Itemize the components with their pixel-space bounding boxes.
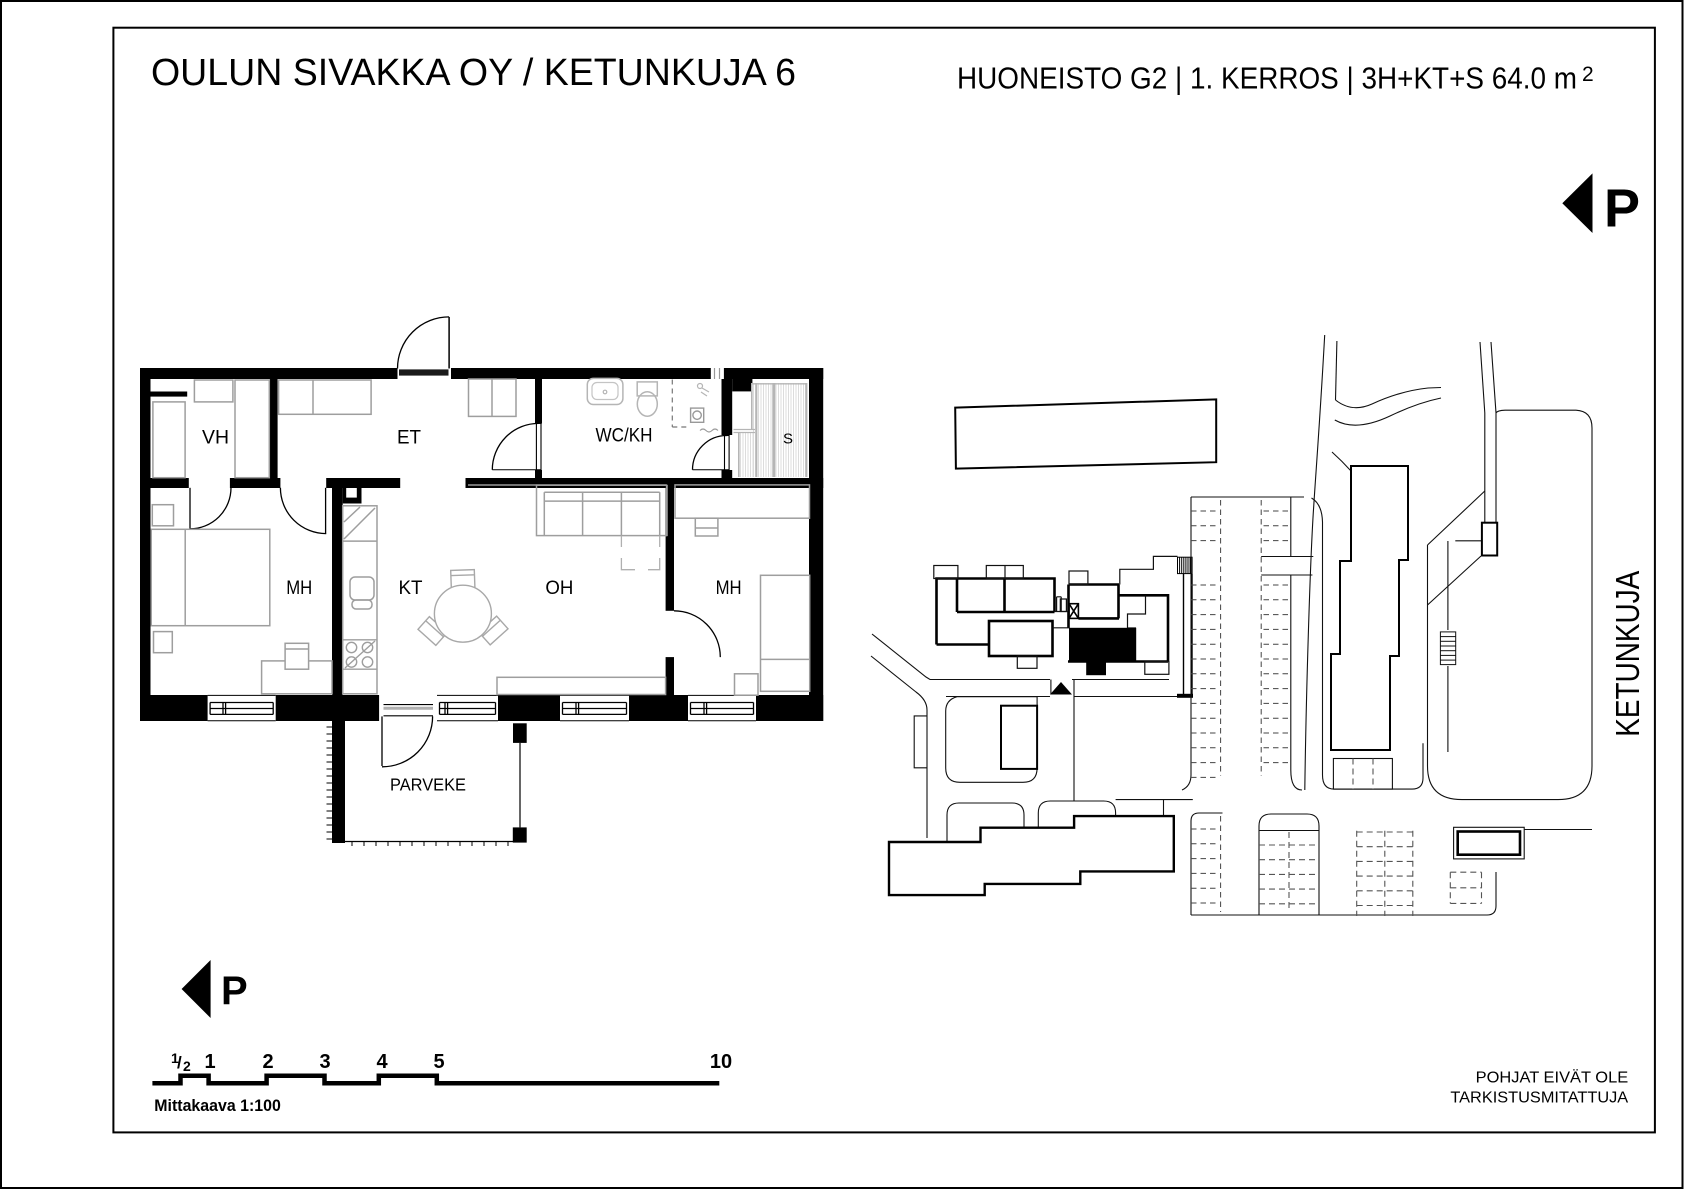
svg-text:P: P [1604, 179, 1640, 239]
svg-text:5: 5 [433, 1051, 444, 1073]
svg-text:Mittakaava 1:100: Mittakaava 1:100 [154, 1097, 280, 1115]
svg-text:2: 2 [262, 1051, 273, 1073]
svg-text:PARVEKE: PARVEKE [390, 774, 466, 794]
svg-text:1: 1 [204, 1051, 215, 1073]
svg-text:3: 3 [319, 1051, 330, 1073]
svg-text:WC/KH: WC/KH [596, 424, 653, 446]
svg-text:MH: MH [286, 577, 312, 599]
svg-text:10: 10 [710, 1051, 732, 1073]
svg-text:KETUNKUJA: KETUNKUJA [1609, 571, 1646, 737]
svg-text:HUONEISTO G2 | 1. KERROS | 3H+: HUONEISTO G2 | 1. KERROS | 3H+KT+S 64.0 … [957, 61, 1577, 96]
svg-text:S: S [783, 430, 793, 447]
svg-text:P: P [221, 969, 248, 1013]
svg-text:VH: VH [202, 426, 229, 448]
svg-text:OULUN SIVAKKA OY / KETUNKUJA 6: OULUN SIVAKKA OY / KETUNKUJA 6 [151, 52, 796, 94]
svg-text:2: 2 [1582, 63, 1594, 86]
svg-text:KT: KT [399, 577, 423, 599]
svg-text:POHJAT EIVÄT OLE: POHJAT EIVÄT OLE [1476, 1068, 1629, 1086]
svg-text:4: 4 [376, 1051, 388, 1073]
svg-text:/: / [177, 1053, 182, 1072]
svg-text:OH: OH [545, 577, 573, 599]
svg-text:2: 2 [183, 1058, 191, 1074]
svg-text:TARKISTUSMITATTUJA: TARKISTUSMITATTUJA [1450, 1089, 1628, 1106]
svg-text:ET: ET [397, 426, 421, 448]
svg-text:MH: MH [716, 577, 742, 599]
